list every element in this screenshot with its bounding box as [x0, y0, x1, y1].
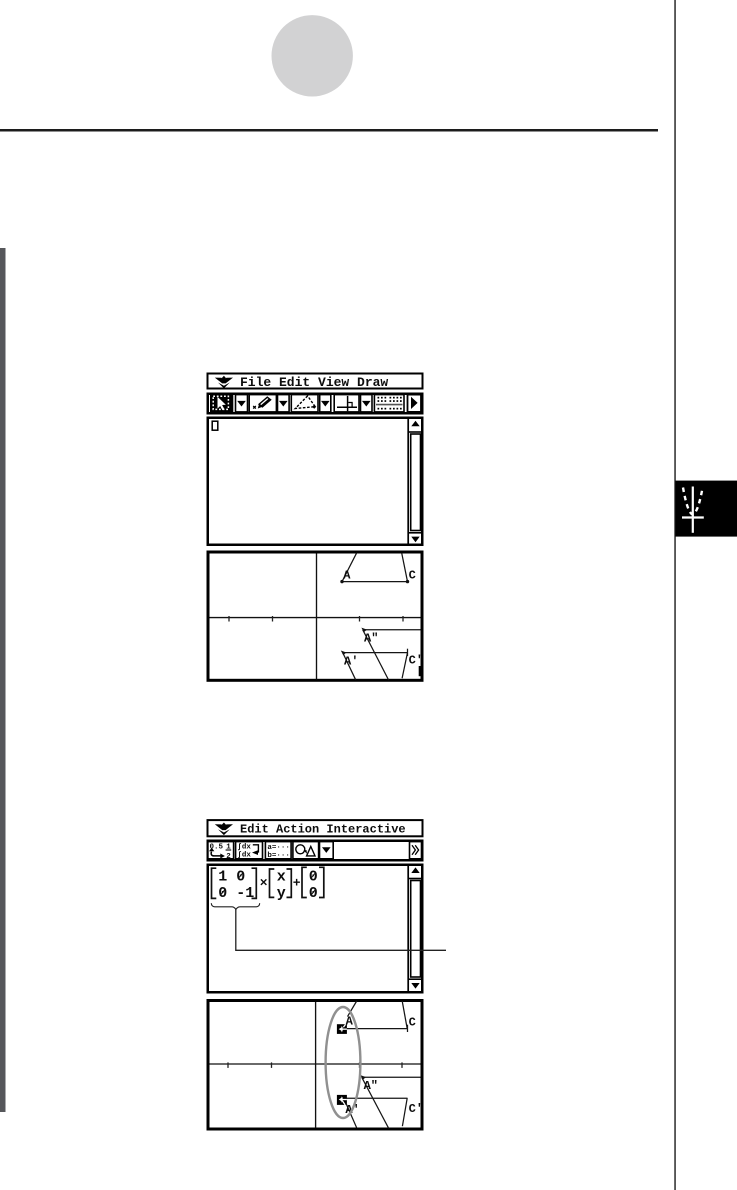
svg-text:A″: A″: [364, 1079, 378, 1093]
svg-text:∫dx: ∫dx: [237, 851, 251, 860]
svg-text:A′: A′: [344, 654, 358, 668]
svg-text:x: x: [277, 868, 286, 885]
svg-text:1 0: 1 0: [218, 868, 245, 885]
svg-text:C: C: [409, 1015, 416, 1029]
svg-text:×: ×: [260, 875, 268, 890]
svg-text:0: 0: [309, 868, 318, 885]
svg-text:a=···: a=···: [267, 844, 290, 852]
svg-text:0 -1: 0 -1: [218, 885, 254, 902]
svg-text:C′: C′: [409, 1102, 423, 1116]
svg-text:2: 2: [226, 853, 231, 861]
svg-text:+: +: [293, 875, 301, 890]
svg-text:0: 0: [309, 885, 318, 902]
svg-text:C: C: [409, 568, 416, 582]
svg-text:Edit Action Interactive: Edit Action Interactive: [240, 823, 406, 837]
svg-text:C′: C′: [409, 654, 423, 668]
svg-text:y: y: [277, 885, 286, 902]
svg-text:A″: A″: [364, 631, 378, 645]
svg-text:∫dx: ∫dx: [237, 843, 251, 852]
svg-text:File Edit View Draw: File Edit View Draw: [240, 375, 388, 390]
svg-text:A: A: [343, 568, 351, 582]
svg-text:b=···: b=···: [267, 852, 290, 860]
